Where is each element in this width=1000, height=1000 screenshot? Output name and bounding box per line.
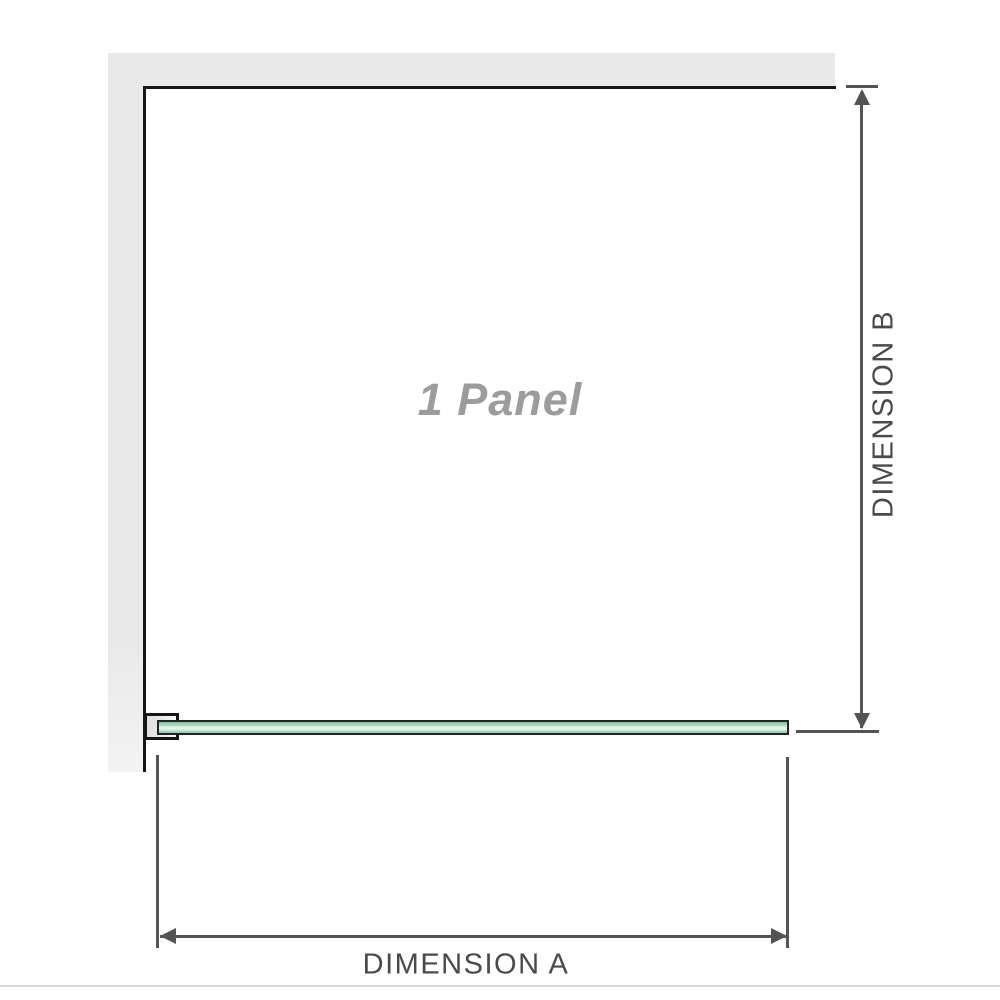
dimension-b-line — [860, 92, 863, 728]
arrow-up-icon — [854, 89, 870, 105]
wall-left-segment — [108, 53, 143, 772]
arrow-left-icon — [160, 928, 176, 944]
dimension-b-bottom-tick — [796, 730, 879, 733]
dimension-a-label: DIMENSION A — [363, 949, 570, 982]
panel-count-label: 1 Panel — [418, 374, 583, 426]
diagram-canvas: 1 Panel DIMENSION B DIMENSION A — [0, 0, 1000, 1000]
dimension-b-top-tick — [846, 85, 878, 88]
dimension-a-line — [160, 935, 787, 938]
dimension-a-left-extension-line — [156, 755, 159, 948]
wall-top-segment — [108, 53, 835, 86]
bottom-divider — [0, 985, 1000, 987]
arrow-right-icon — [771, 928, 787, 944]
wall-top-edge-line — [143, 86, 836, 89]
arrow-down-icon — [854, 713, 870, 729]
wall-left-edge-line — [143, 86, 146, 772]
dimension-b-label: DIMENSION B — [868, 310, 901, 518]
glass-panel — [157, 720, 789, 735]
dimension-a-right-extension-line — [786, 757, 789, 948]
